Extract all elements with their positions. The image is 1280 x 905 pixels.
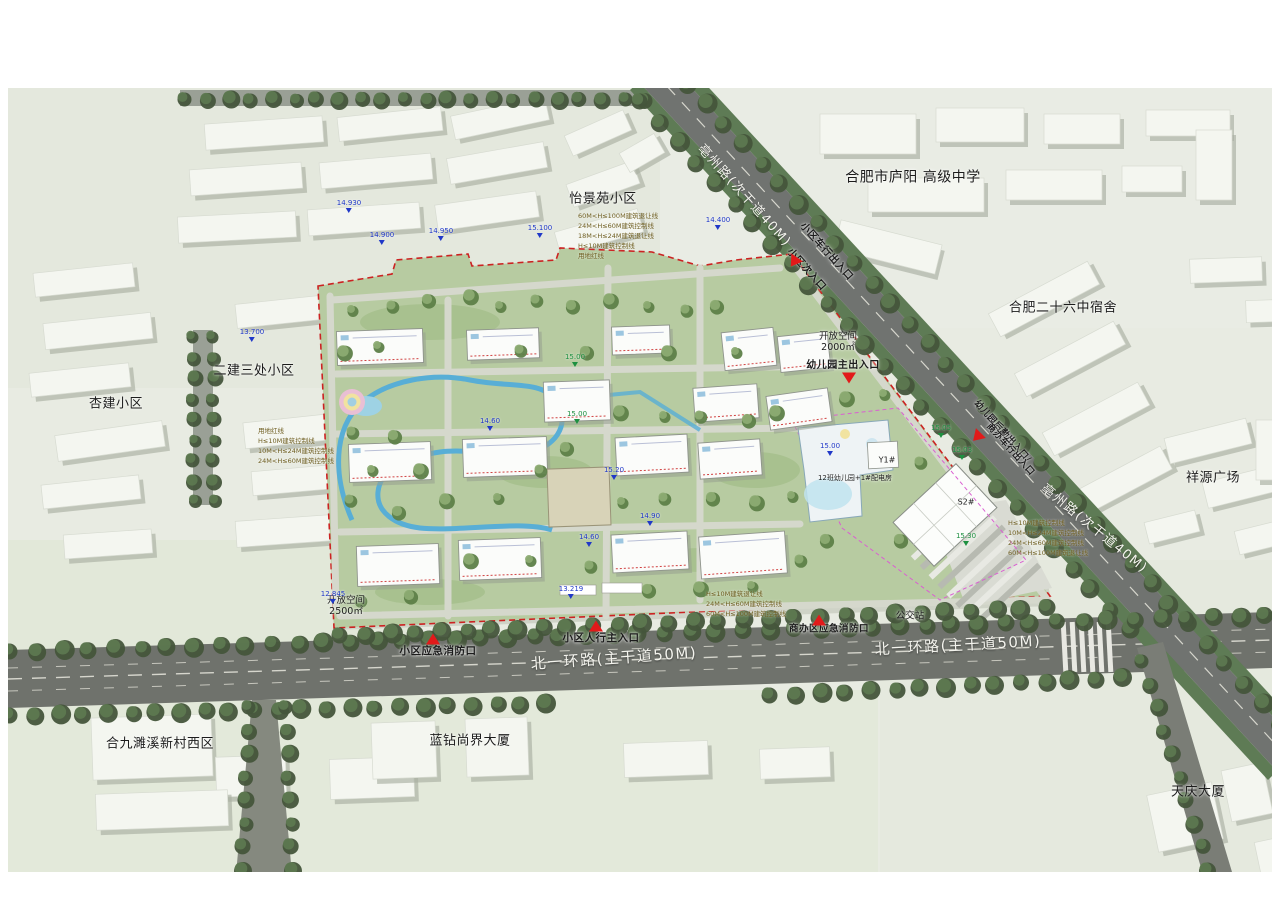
site-plan-graphics (0, 0, 1280, 905)
site-plan-map: 亳州路(次干道40M)亳州路(次干道40M)北一环路(主干道50M)北一环路(主… (0, 0, 1280, 905)
